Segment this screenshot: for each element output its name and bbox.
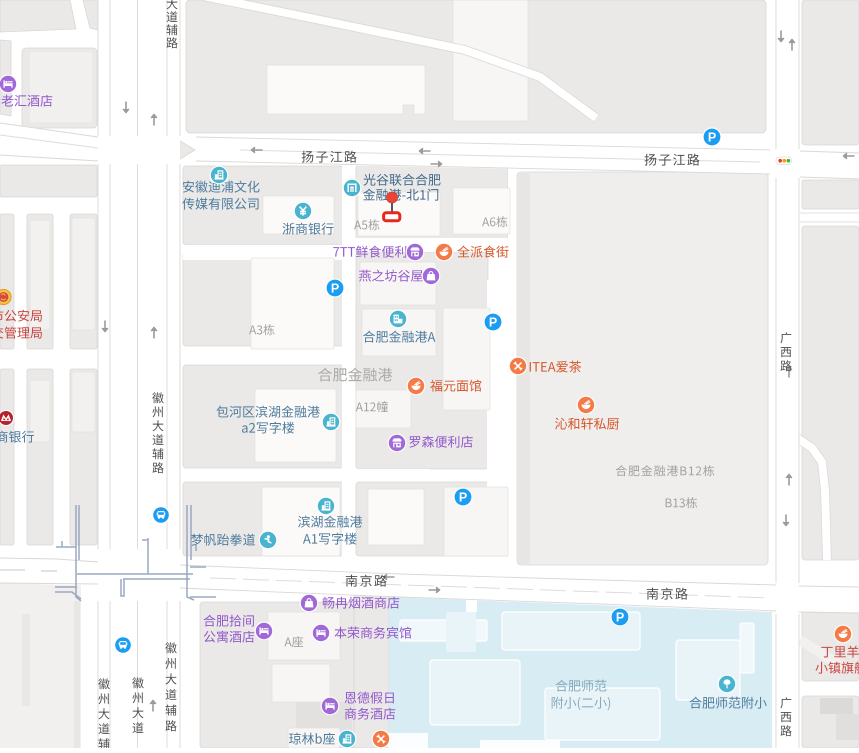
svg-text:P: P	[616, 610, 624, 624]
svg-text:P: P	[331, 281, 339, 295]
svg-text:P: P	[489, 315, 497, 329]
svg-text:P: P	[708, 130, 716, 144]
svg-text:P: P	[459, 490, 467, 504]
